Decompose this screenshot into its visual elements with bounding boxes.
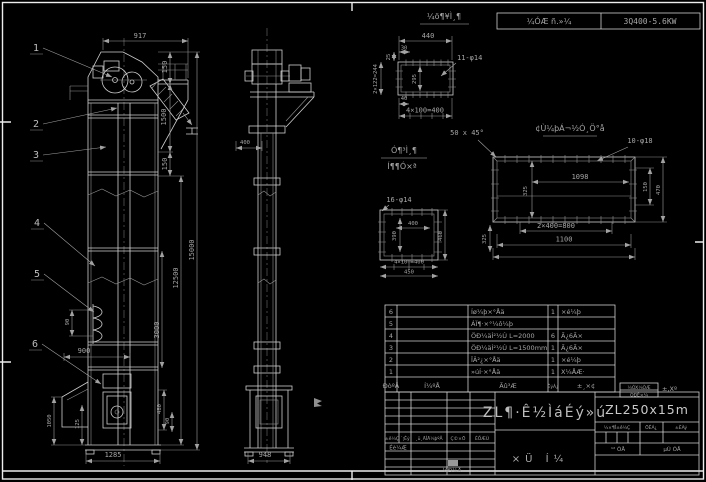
balloon-2: 2 [33,119,39,130]
dim-90-b: 90 [165,418,171,425]
model-number: ZL250x15m [605,402,689,417]
dim-400-sq: 400 [408,221,418,227]
side-elevation-view: 400 948 [236,28,322,464]
motor-label: ¼ÓÆ ñ.»¼ [527,15,572,26]
part-remark: Ã¿6Ã× [561,331,583,340]
part-name: »úÍ·×°Åä [471,367,500,376]
part-no: 1 [389,368,393,376]
balloon-4: 4 [34,218,40,229]
table-row: 2 ÏÂ²¿×°Åä 1 ×é¼þ [389,355,581,364]
dim-90-a: 90 [65,319,71,326]
rev-sign-label: Ç©×Ö [451,435,466,442]
motor-spec: 3Q400-5.6KW [624,17,677,26]
dim-1050: 1050 [47,414,53,427]
chamfer-label: 50 x 45° [450,129,484,137]
part-no: 2 [389,356,393,364]
dim-40: 40 [401,96,408,102]
square-flange-detail: 16-φ14 400 390 460 4×100=400 450 325 [378,196,490,276]
dim-30: 30 [401,46,408,52]
title-block: ±ê¼Ç ´¦Êý ¸ü¸ÄÎÄ¼þºÅ Ç©×Ö ÈÕÆÚ Éè¼Æ ¼Ð¼Å… [385,383,699,475]
parts-table: ÐòºÅ Í¼ºÅ Ãû³Æ ÊýÁ¿ ±¸×¢ 6 Íø¼þ×°Åä 1 ×é… [383,305,615,392]
mid-note-line1: Ó¶³Ì¸¶ [391,144,417,155]
plate-detail-title: ¢Ù¼þÁ¬½Ó¸Ö°å [535,122,604,133]
chamfer-note: 50 x 45° [450,129,496,157]
table-row: 3 ÖÐ¼äÍ²½Ú L=1500mm 1 Ã¿6Ã× [389,343,583,352]
dim-440: 440 [422,32,435,40]
dim-325-side: 325 [482,234,488,244]
rev-mark-label: ±ê¼Ç [385,435,399,442]
rev-date-label: ÈÕÆÚ [475,434,489,442]
dim-150-b: 150 [161,158,169,171]
part-qty: 1 [551,368,555,376]
dim-15000: 15000 [188,239,196,260]
balloon-6: 6 [32,339,38,350]
part-no: 4 [389,332,393,340]
dim-12500: 12500 [172,267,180,288]
table-row: 5 ÁÏ¶·×°¼ô¼þ [389,319,513,328]
dim-25: 25 [386,54,392,61]
plate-holes-label: 10-φ18 [627,137,652,145]
balloon-1: 1 [33,43,39,54]
flange-detail-title: ¼ö¶¥Ì¸¶ [427,10,461,21]
part-name: ÏÂ²¿×°Åä [471,355,501,364]
part-name: ÖÐ¼äÍ²½Ú L=1500mm [471,343,547,352]
col-header-remark: ±¸×¢ [577,382,595,390]
col-header-name: Ãû³Æ [499,381,517,390]
drawing-title: ZL¶·Ê½ÌáÉý»ú [483,403,607,421]
dim-480: 480 [157,404,163,414]
dim-900: 900 [78,347,91,355]
part-qty: 1 [551,308,555,316]
part-name: ÖÐ¼äÍ²½Ú L=2000 [471,331,535,340]
mid-note: Ó¶³Ì¸¶ Í¶¶Ó×ª [381,144,427,171]
part-qty: 1 [551,356,555,364]
dim-400: 400 [240,140,250,146]
table-row: 4 ÖÐ¼äÍ²½Ú L=2000 6 Ã¿6Ã× [389,331,583,340]
dim-4x100-b: 4×100=400 [394,260,424,266]
dim-450: 450 [404,270,414,276]
part-remark: ×é¼þ [561,308,581,316]
dim-390: 390 [392,231,398,241]
sheets-number: µÚ ÕÅ [663,446,681,453]
table-row: 6 Íø¼þ×°Åä 1 ×é¼þ [389,307,581,316]
dim-948: 948 [259,451,272,459]
part-no: 3 [389,344,393,352]
dim-2x122: 2×122=244 [373,63,379,93]
part-remark: ×é¼þ [561,356,581,364]
rev-count-label: ´¦Êý [400,434,410,442]
square-holes-label: 16-φ14 [386,196,411,204]
rev-doc-label: ¸ü¸ÄÎÄ¼þºÅ [415,435,443,442]
mid-note-line2: Í¶¶Ó×ª [387,160,417,171]
weight-label: ÖÊÁ¿ [645,423,657,431]
balloon-5: 5 [34,269,40,280]
dim-125: 125 [75,419,81,429]
dim-460: 460 [438,231,444,241]
dim-295: 295 [412,74,418,84]
sheets-total: ¹² ÕÅ [611,446,625,453]
design-label: Éè¼Æ [389,444,407,452]
corner-note-3: ±,Xº [662,385,677,393]
scale-label: ±ÈÀý [675,423,687,431]
stage-label: ½×¶Î±ê¼Ç [604,424,630,431]
dim-2x400: 2×400=800 [537,222,575,230]
part-name: ÁÏ¶·×°¼ô¼þ [471,319,513,328]
cad-drawing-canvas[interactable]: ¼ÓÆ ñ.»¼ 3Q400-5.6KW [0,0,706,482]
dim-1100: 1100 [556,236,573,244]
balloon-3: 3 [33,150,39,161]
header-table: ¼ÓÆ ñ.»¼ 3Q400-5.6KW [497,13,700,29]
dim-4x100-a: 4×100=400 [406,107,444,115]
section-mark [314,398,322,407]
dim-1098: 1098 [572,173,589,181]
col-header-qty: ÊýÁ¿ [548,382,560,390]
part-name: Íø¼þ×°Åä [471,307,504,316]
col-header-no: ÐòºÅ [383,381,400,390]
part-remark: X¼ÅÆ· [561,367,585,376]
date-label: ¼Ð¼Å [443,467,462,474]
dim-917: 917 [134,32,147,40]
flange-holes-label: 11-φ14 [457,54,482,62]
dim-3000: 3000 [153,322,161,339]
front-elevation-view: 1 2 3 4 5 6 917 150 1500 150 12500 15000… [29,32,200,466]
dim-150-plate: 150 [643,182,649,192]
dim-1285: 1285 [105,451,122,459]
dim-325-plate: 325 [523,186,529,196]
plate-detail: ¢Ù¼þÁ¬½Ó¸Ö°å 10-φ18 325 1098 150 470 2×4… [491,122,667,260]
part-no: 5 [389,320,393,328]
part-remark: Ã¿6Ã× [561,343,583,352]
dim-1500: 1500 [160,109,168,126]
dim-470: 470 [656,185,662,195]
corner-note-1: ¼ÓX¼ÒÆ [628,384,652,391]
signature-stamp [448,460,458,466]
part-no: 6 [389,308,393,316]
part-qty: 6 [551,332,555,340]
col-header-code: Í¼ºÅ [424,381,440,390]
sheet-type: ×Ü Í¼ [512,452,569,465]
part-qty: 1 [551,344,555,352]
table-row: 1 »úÍ·×°Åä 1 X¼ÅÆ· [389,367,585,376]
flange-detail: ¼ö¶¥Ì¸¶ 440 30 25 11-φ14 2×122=244 295 4… [373,10,482,119]
dim-150-a: 150 [161,61,169,74]
